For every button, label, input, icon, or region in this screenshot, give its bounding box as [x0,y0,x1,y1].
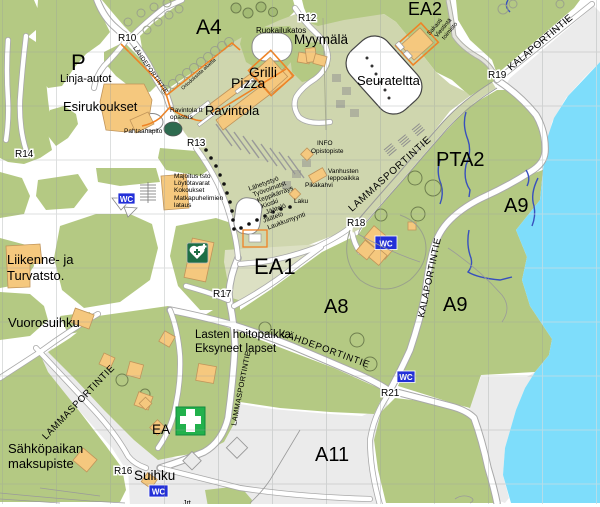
svg-text:R14: R14 [15,149,34,160]
svg-text:R21: R21 [381,388,400,399]
svg-text:EA2: EA2 [408,0,442,19]
svg-text:Vuorosuihku: Vuorosuihku [8,315,80,330]
svg-text:Ravintola tt: Ravintola tt [170,107,203,114]
svg-text:EA1: EA1 [254,254,296,279]
svg-text:Pahtaanapito: Pahtaanapito [124,128,163,135]
svg-text:R12: R12 [298,13,317,24]
svg-text:WC: WC [120,195,134,204]
svg-text:Pizza: Pizza [231,75,265,91]
svg-text:R16: R16 [114,466,133,477]
svg-text:WC: WC [152,488,166,497]
svg-text:Ruokailukatos: Ruokailukatos [256,26,306,35]
svg-text:A9: A9 [504,195,528,217]
svg-text:Matkapuhelimien: Matkapuhelimien [174,195,224,202]
svg-text:leppoaikka: leppoaikka [328,175,359,182]
svg-text:Linja-autot: Linja-autot [60,73,111,85]
svg-text:Turvatsto.: Turvatsto. [7,268,64,283]
svg-text:WC: WC [379,240,393,249]
svg-text:A8: A8 [324,296,348,318]
svg-text:opastus: opastus [170,114,194,121]
svg-text:R17: R17 [213,289,232,300]
svg-text:Lasten hoitopaikka,: Lasten hoitopaikka, [195,329,294,341]
svg-text:Esirukoukset: Esirukoukset [63,99,138,114]
svg-text:R13: R13 [187,138,206,149]
svg-text:R10: R10 [118,33,137,44]
svg-text:INFO: INFO [317,140,333,147]
svg-text:maksupiste: maksupiste [8,456,74,471]
svg-text:A11: A11 [315,444,349,466]
svg-text:Suihku: Suihku [134,468,175,483]
svg-text:Löytötavarat: Löytötavarat [174,180,210,187]
svg-text:A4: A4 [196,16,222,39]
svg-text:Majoitus tsto: Majoitus tsto [174,173,211,180]
svg-text:R18: R18 [347,218,366,229]
svg-text:Ravintola: Ravintola [205,103,260,118]
svg-text:WC: WC [399,373,413,382]
svg-text:Kokoukset: Kokoukset [174,187,205,194]
svg-text:Vanhusten: Vanhusten [328,168,359,175]
svg-text:A9: A9 [443,294,467,316]
svg-text:EA: EA [152,422,170,437]
svg-text:lataus: lataus [174,202,192,209]
svg-text:Laku: Laku [294,198,308,205]
svg-text:Seurateltta: Seurateltta [357,73,421,88]
svg-text:Pikakahvi: Pikakahvi [305,182,333,189]
svg-text:R19: R19 [488,70,507,81]
svg-text:Liikenne- ja: Liikenne- ja [7,252,74,267]
svg-text:Opistopiste: Opistopiste [311,148,344,155]
svg-text:PTA2: PTA2 [436,149,485,171]
svg-text:P: P [71,50,86,75]
svg-text:Sähköpaikan: Sähköpaikan [8,441,83,456]
svg-text:Eksyneet lapset: Eksyneet lapset [195,343,277,355]
